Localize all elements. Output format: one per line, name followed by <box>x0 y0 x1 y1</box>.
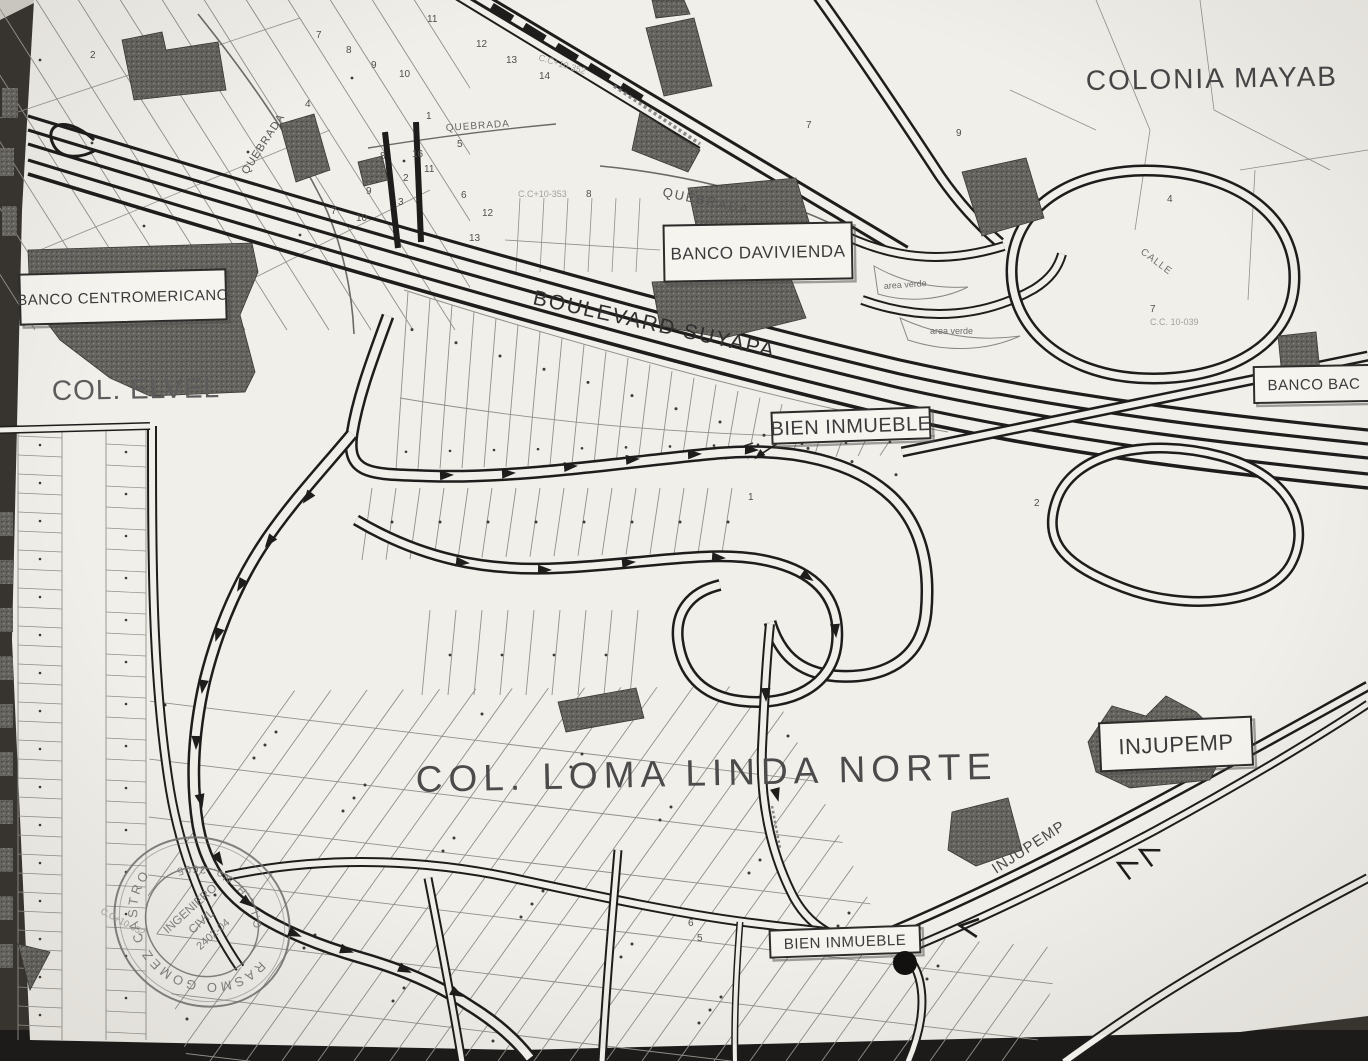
building-small <box>0 944 13 968</box>
lot-dot <box>895 473 898 476</box>
lot-dot <box>453 837 456 840</box>
building-small <box>0 800 13 824</box>
plot-number: 12 <box>476 39 488 50</box>
area-label-colonia-mayab: COLONIA MAYAB <box>1086 61 1339 96</box>
lot-dot <box>587 381 590 384</box>
lot-dot <box>125 535 128 538</box>
lot-dot <box>91 142 94 145</box>
lot-dot <box>39 520 42 523</box>
lot-dot <box>535 521 538 524</box>
lot-dot <box>405 450 408 453</box>
lot-dot <box>186 1018 189 1021</box>
lot-dot <box>848 912 851 915</box>
lot-dot <box>631 394 634 397</box>
lot-dot <box>39 59 42 62</box>
lot-dot <box>748 872 751 875</box>
plot-number: 9 <box>371 60 377 71</box>
area-label-col-elvel: COL. ELVEL <box>52 372 221 406</box>
lot-dot <box>364 784 367 787</box>
lot-dot <box>851 460 854 463</box>
lot-dot <box>926 978 929 981</box>
building-small <box>0 848 13 872</box>
lot-dot <box>39 748 42 751</box>
lot-dot <box>39 862 42 865</box>
lot-dot <box>543 368 546 371</box>
lot-dot <box>125 745 128 748</box>
lot-dot <box>411 328 414 331</box>
plot-number: 13 <box>469 233 481 244</box>
lot-dot <box>125 493 128 496</box>
lot-dot <box>520 916 523 919</box>
lot-dot <box>720 996 723 999</box>
lot-dot <box>353 797 356 800</box>
plot-number: 7 <box>1150 304 1156 315</box>
lot-dot <box>299 234 302 237</box>
lot-dot <box>679 521 682 524</box>
lot-dot <box>303 947 306 950</box>
plot-number: 16 <box>412 149 424 160</box>
plot-number: 8 <box>586 189 592 200</box>
lot-dot <box>501 654 504 657</box>
lot-dot <box>403 160 406 163</box>
building-small <box>2 206 17 236</box>
lot-dot <box>670 806 673 809</box>
plot-number: 6 <box>461 190 467 201</box>
lot-dot <box>39 672 42 675</box>
lot-dot <box>125 661 128 664</box>
lot-dot <box>727 521 730 524</box>
plot-number: 7 <box>806 120 812 131</box>
lot-dot <box>449 654 452 657</box>
plot-number: 11 <box>424 164 435 175</box>
lot-dot <box>759 859 762 862</box>
lot-dot <box>125 703 128 706</box>
boxed-label-banco-davivienda: BANCO DAVIVIENDA <box>664 222 856 284</box>
box-text: BANCO DAVIVIENDA <box>670 242 845 264</box>
building-small <box>0 148 14 176</box>
lot-dot <box>439 521 442 524</box>
plot-number: 4 <box>305 99 311 110</box>
lot-dot <box>39 1014 42 1017</box>
lot-dot <box>449 450 452 453</box>
building-small <box>0 560 13 584</box>
lot-dot <box>698 1022 701 1025</box>
plot-number: 11 <box>427 14 438 25</box>
lot-dot <box>39 786 42 789</box>
lot-dot <box>605 654 608 657</box>
building-small <box>0 608 13 632</box>
lot-dot <box>39 444 42 447</box>
road-label: area verde <box>930 326 973 336</box>
plot-number: 6 <box>688 918 694 929</box>
lot-dot <box>631 521 634 524</box>
lot-dot <box>253 757 256 760</box>
lot-dot <box>342 810 345 813</box>
boxed-label-banco-bac: BANCO BAC <box>1254 365 1368 406</box>
plot-number: 2 <box>1034 498 1040 509</box>
building-small <box>0 512 13 536</box>
building-small <box>2 88 18 118</box>
plot-number: 10 <box>356 213 368 224</box>
lot-dot <box>719 421 722 424</box>
plot-number: 1 <box>748 492 754 503</box>
lot-dot <box>481 713 484 716</box>
lot-dot <box>581 447 584 450</box>
plot-number: 13 <box>506 55 518 66</box>
lot-dot <box>125 619 128 622</box>
lot-dot <box>455 341 458 344</box>
lot-dot <box>39 558 42 561</box>
lot-dot <box>625 446 628 449</box>
lot-dot <box>675 407 678 410</box>
plot-number: 8 <box>346 45 352 56</box>
building-small <box>0 656 13 680</box>
lot-dot <box>125 577 128 580</box>
lot-dot <box>631 943 634 946</box>
lot-dot <box>763 434 766 437</box>
lot-dot <box>669 445 672 448</box>
box-text: INJUPEMP <box>1118 729 1234 759</box>
plot-number: 10 <box>399 69 411 80</box>
lot-dot <box>125 787 128 790</box>
lot-dot <box>247 151 250 154</box>
lot-dot <box>709 1009 712 1012</box>
lot-dot <box>351 77 354 80</box>
lot-dot <box>583 521 586 524</box>
lot-dot <box>807 447 810 450</box>
boxed-label-bien-inmueble-norte: BIEN INMUEBLE <box>770 407 934 447</box>
building-small <box>0 896 13 920</box>
lot-dot <box>275 731 278 734</box>
lot-dot <box>659 819 662 822</box>
lot-dot <box>499 355 502 358</box>
plot-number: 1 <box>426 111 432 122</box>
lot-dot <box>39 634 42 637</box>
boxed-label-injupemp-box: INJUPEMP <box>1099 717 1256 775</box>
lot-dot <box>39 938 42 941</box>
lot-dot <box>713 444 716 447</box>
lot-dot <box>403 987 406 990</box>
property-marker <box>893 951 917 975</box>
lot-dot <box>442 850 445 853</box>
lot-dot <box>39 976 42 979</box>
faint-note: C.C. 10-039 <box>1150 317 1199 327</box>
box-text: BANCO BAC <box>1267 376 1360 395</box>
building-small <box>0 752 13 776</box>
plot-number: 5 <box>457 139 463 150</box>
lot-dot <box>264 744 267 747</box>
plot-number: 12 <box>482 208 494 219</box>
lot-dot <box>787 735 790 738</box>
building-small <box>0 704 13 728</box>
lot-dot <box>125 829 128 832</box>
lot-dot <box>125 997 128 1000</box>
lot-dot <box>493 449 496 452</box>
lot-dot <box>39 710 42 713</box>
plot-number: 3 <box>398 197 404 208</box>
lot-dot <box>391 521 394 524</box>
photo-backdrop: ERASMO GOMEZ CASTROC.I.C.H. No. 3605INGE… <box>0 0 1368 1061</box>
plot-number: 7 <box>316 30 322 41</box>
plot-number: 7 <box>331 206 337 217</box>
lot-dot <box>392 1000 395 1003</box>
plot-number: 14 <box>539 71 551 82</box>
lot-dot <box>39 824 42 827</box>
plot-number: 9 <box>366 186 372 197</box>
lot-dot <box>487 521 490 524</box>
plot-number: 4 <box>1167 194 1173 205</box>
lot-dot <box>837 925 840 928</box>
lot-dot <box>39 596 42 599</box>
lot-dot <box>492 1040 495 1043</box>
lot-dot <box>39 482 42 485</box>
lot-dot <box>542 890 545 893</box>
scanned-map-page: ERASMO GOMEZ CASTROC.I.C.H. No. 3605INGE… <box>0 0 1368 1061</box>
faint-note: C.C+10-353 <box>518 189 567 199</box>
plot-number: 8 <box>380 151 386 162</box>
lot-dot <box>537 448 540 451</box>
plot-number: 9 <box>956 128 962 139</box>
plot-number: 2 <box>403 173 409 184</box>
lot-dot <box>125 451 128 454</box>
property-dot-icon <box>893 951 917 975</box>
lot-dot <box>39 900 42 903</box>
lot-dot <box>553 654 556 657</box>
plot-number: 5 <box>697 933 703 944</box>
lot-dot <box>620 956 623 959</box>
lot-dot <box>143 225 146 228</box>
lot-dot <box>531 903 534 906</box>
boxed-label-banco-centromericano: BANCO CENTROMERICANO <box>17 269 230 328</box>
lot-dot <box>937 965 940 968</box>
plot-number: 2 <box>90 50 96 61</box>
